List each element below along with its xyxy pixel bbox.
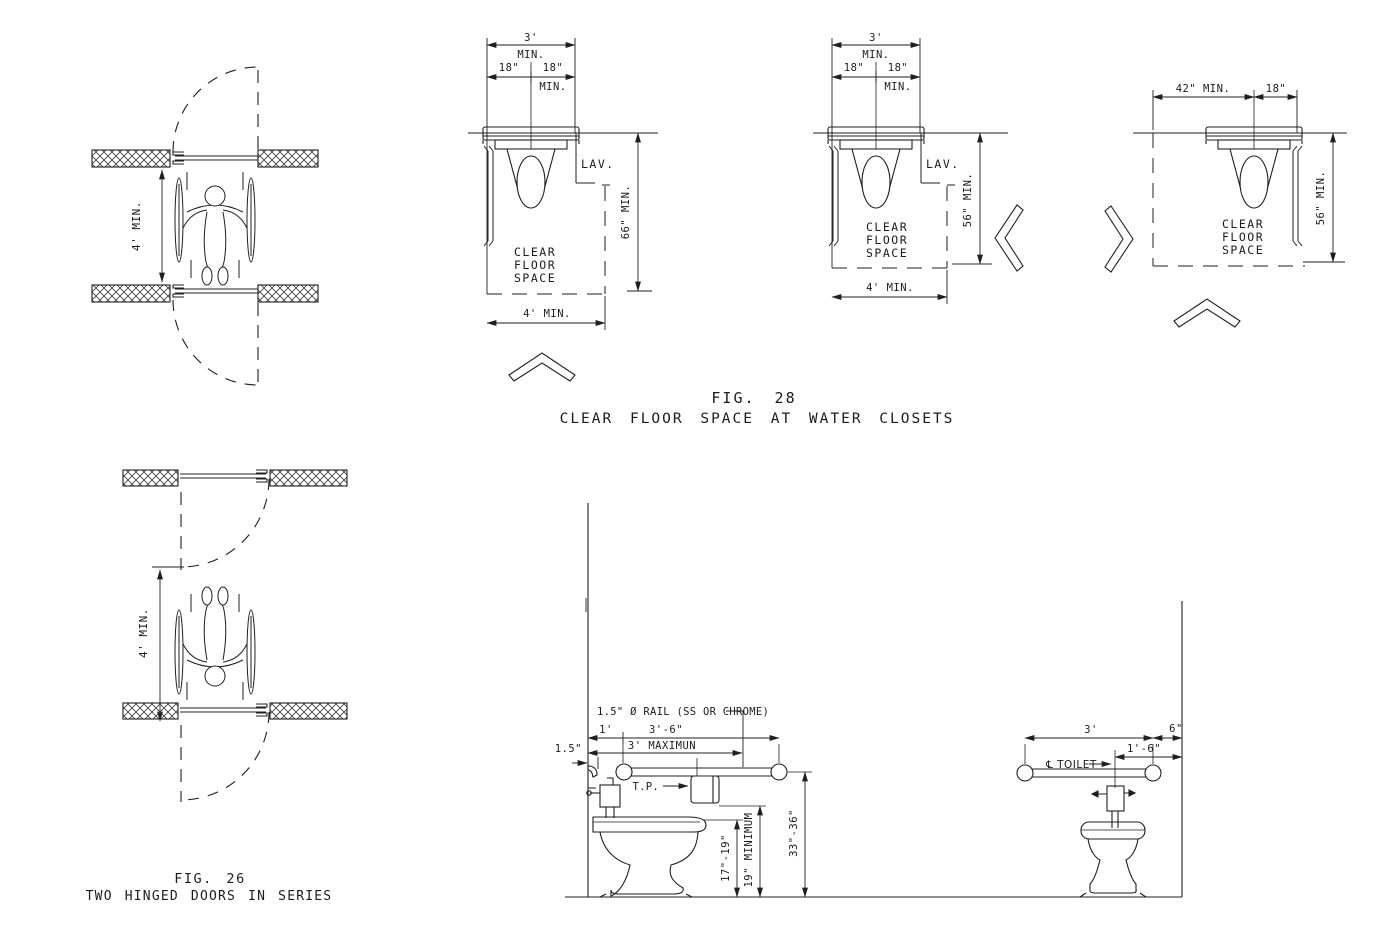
fig28-caption: FIG. 28 CLEAR FLOOR SPACE AT WATER CLOSE… xyxy=(560,389,955,427)
clear-floor-label-1: CLEAR xyxy=(866,220,908,234)
dim-66-min: 66" MIN. xyxy=(620,185,632,240)
grab-bar xyxy=(484,146,493,246)
approach-arrow-up xyxy=(1174,299,1240,327)
wheelchair-user xyxy=(175,587,255,700)
dim-4ft-min: 4' MIN. xyxy=(866,282,914,294)
dim-3ft6: 3'-6" xyxy=(649,724,683,736)
dim-56-min: 56" MIN. xyxy=(962,173,974,228)
door-swing-arc xyxy=(173,67,258,152)
dim-6in: 6" xyxy=(1169,723,1183,735)
cad-sheet: 4' MIN. 4' MIN. FIG. 26 TWO HINGED DOOR xyxy=(0,0,1397,939)
clear-floor-label-2: FLOOR xyxy=(1222,230,1264,244)
wall-segment xyxy=(270,470,347,486)
door-leaf xyxy=(173,285,258,297)
door-swing-arc xyxy=(173,300,258,385)
grab-rail xyxy=(616,764,787,780)
wall-segment xyxy=(123,470,178,486)
door-leaf xyxy=(180,470,267,482)
fig28-diagram-2: 3' MIN. 18" 18" MIN. LAV. CLEAR FLOOR SP… xyxy=(813,32,1023,304)
door-leaf xyxy=(180,704,267,716)
fig26-bottom-diagram: 4' MIN. xyxy=(123,470,347,802)
lavatory-label: LAV. xyxy=(581,157,615,171)
door-swing-arc xyxy=(181,712,269,800)
dim-4ft-min: 4' MIN. xyxy=(523,308,571,320)
rear-elevation: 3' 6" 1'-6" ℄ TOILET xyxy=(1017,601,1183,897)
dim-18-right: 18" xyxy=(543,62,563,74)
fig26-top-diagram: 4' MIN. xyxy=(92,67,318,385)
dim-56-min: 56" MIN. xyxy=(1315,171,1327,226)
dim-4ft-min: 4' MIN. xyxy=(137,608,150,658)
approach-arrow-left xyxy=(995,205,1023,271)
figure-number: FIG. 28 xyxy=(711,389,796,407)
door-leaf xyxy=(173,152,258,164)
clear-floor-label-3: SPACE xyxy=(866,246,908,260)
dim-18-left: 18" xyxy=(499,62,519,74)
dim-3ft: 3' xyxy=(1084,724,1098,736)
wall-segment xyxy=(92,150,170,167)
dim-3max: 3' MAXIMUN xyxy=(628,740,696,752)
figure-title: TWO HINGED DOORS IN SERIES xyxy=(86,889,333,904)
clear-floor-label-2: FLOOR xyxy=(514,258,556,272)
rail-note-leader xyxy=(726,711,743,767)
fig26-caption: FIG. 26 TWO HINGED DOORS IN SERIES xyxy=(86,871,333,904)
dim-1ft6: 1'-6" xyxy=(1127,743,1161,755)
dim-3ft-min: MIN. xyxy=(517,49,544,61)
figure-title: CLEAR FLOOR SPACE AT WATER CLOSETS xyxy=(560,411,955,427)
wall-segment xyxy=(92,285,170,302)
dim-18-left: 18" xyxy=(844,62,864,74)
wheelchair-user xyxy=(175,172,255,285)
toilet-side-view xyxy=(593,817,706,897)
dim-1ft: 1' xyxy=(599,724,613,736)
side-elevation: 1.5" Ø RAIL (SS OR CHROME) 1' 3'-6" 3' M… xyxy=(555,503,1182,897)
dim-18: 18" xyxy=(1266,83,1286,95)
flush-valve xyxy=(587,778,620,818)
dim-tp-height: 19" MINIMUM xyxy=(743,812,755,887)
figure-number: FIG. 26 xyxy=(174,871,245,887)
clear-floor-label-3: SPACE xyxy=(1222,243,1264,257)
approach-arrow-up xyxy=(509,353,575,381)
dim-gap: 1.5" xyxy=(555,743,582,755)
dim-18-min: MIN. xyxy=(539,81,566,93)
lavatory-label: LAV. xyxy=(926,157,960,171)
tp-label: T.P. xyxy=(633,781,660,793)
dim-rail-height: 33"-36" xyxy=(788,809,800,857)
drawing-canvas: 4' MIN. 4' MIN. FIG. 26 TWO HINGED DOOR xyxy=(0,0,1397,939)
wall-segment xyxy=(270,703,347,719)
dim-3ft: 3' xyxy=(869,32,883,44)
clear-floor-label-3: SPACE xyxy=(514,271,556,285)
dim-3ft-min: MIN. xyxy=(862,49,889,61)
wall-segment xyxy=(258,150,318,167)
dim-seat-height: 17"-19" xyxy=(720,834,732,882)
wall-segment xyxy=(258,285,318,302)
approach-arrow-right xyxy=(1105,206,1133,272)
fig28-diagram-3: 42" MIN. 18" CLEAR FLOOR SPACE 56" MIN. xyxy=(1105,83,1347,327)
side-rail-end xyxy=(588,766,597,777)
grab-bar xyxy=(829,146,838,246)
clear-floor-label-2: FLOOR xyxy=(866,233,908,247)
wall-segment xyxy=(123,703,178,719)
dim-18-min: MIN. xyxy=(884,81,911,93)
toilet-rear-view xyxy=(1080,822,1146,897)
toilet-paper-dispenser xyxy=(691,758,719,803)
grab-bar xyxy=(1293,146,1302,246)
dim-4ft-min: 4' MIN. xyxy=(130,201,143,251)
dim-42-min: 42" MIN. xyxy=(1176,83,1231,95)
fig28-diagram-1: 3' MIN. 18" 18" MIN. LAV. CLEAR FLOOR SP… xyxy=(468,32,658,381)
door-swing-arc xyxy=(181,479,269,567)
clear-floor-label-1: CLEAR xyxy=(514,245,556,259)
clear-floor-label-1: CLEAR xyxy=(1222,217,1264,231)
dim-3ft: 3' xyxy=(524,32,538,44)
dim-18-right: 18" xyxy=(888,62,908,74)
